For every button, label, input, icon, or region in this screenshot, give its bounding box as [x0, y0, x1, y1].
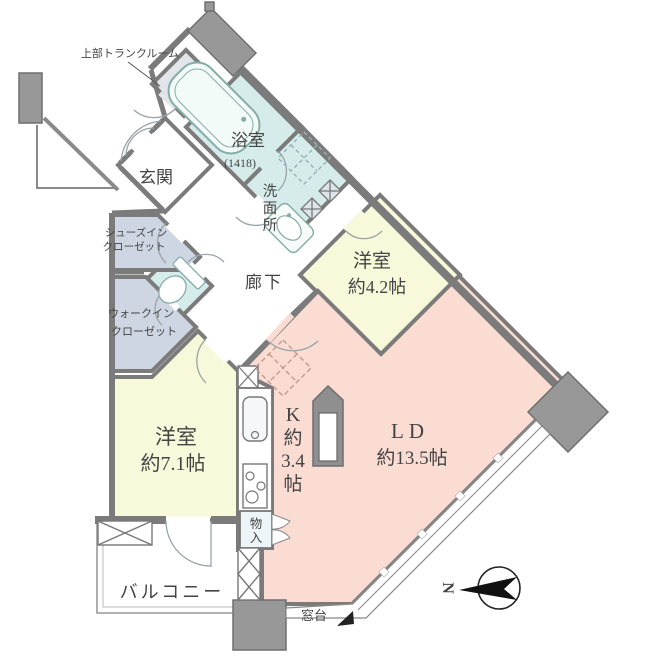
floor-plan-canvas: 上部トランクルーム 玄関 浴室 (1418) 洗 面 所 廊下 シューズイン ク…	[0, 0, 650, 657]
label-west-7-1-name: 洋室	[155, 425, 197, 449]
label-wic-2: クローゼット	[111, 325, 177, 338]
label-storage-1: 物	[250, 517, 263, 531]
label-ld-name: LD	[391, 419, 429, 443]
label-washroom-1: 洗	[263, 183, 278, 200]
balcony-hatch-box	[98, 521, 152, 545]
ld-column-inner	[319, 413, 337, 461]
pillar-top-nub	[205, 2, 214, 11]
label-kitchen-4: 帖	[283, 473, 302, 495]
label-bathroom-size: (1418)	[224, 156, 256, 170]
hatched-column	[238, 548, 260, 600]
label-storage-2: 入	[250, 531, 263, 545]
label-kitchen-3: 3.4	[281, 451, 305, 472]
hatched-column-box	[238, 548, 260, 600]
label-kitchen-2: 約	[283, 427, 302, 449]
label-balcony: バルコニー	[120, 582, 225, 602]
label-ld-size: 約13.5帖	[376, 447, 447, 469]
pillar-left	[19, 73, 42, 123]
compass-north-label: N	[439, 582, 456, 594]
label-washroom-2: 面	[263, 201, 278, 217]
label-entrance: 玄関	[139, 168, 173, 187]
label-west-4-2-size: 約4.2帖	[348, 277, 407, 297]
label-washroom-3: 所	[263, 217, 278, 234]
ld-column	[313, 386, 343, 466]
kitchen-fixtures	[238, 366, 272, 512]
label-kitchen-1: K	[286, 404, 301, 426]
label-west-7-1-size: 約7.1帖	[141, 452, 206, 475]
label-corridor: 廊下	[245, 273, 283, 292]
pillar-bottom	[233, 600, 286, 650]
label-madodai: 窓台	[301, 608, 327, 623]
wall-sic-top	[112, 211, 163, 213]
label-sic-2: クローゼット	[103, 241, 166, 253]
label-trunk-note: 上部トランクルーム	[81, 46, 179, 60]
floor-plan-page: 上部トランクルーム 玄関 浴室 (1418) 洗 面 所 廊下 シューズイン ク…	[0, 0, 650, 657]
kitchen-sink	[243, 397, 267, 441]
kitchen-stove	[243, 464, 267, 508]
label-wic-1: ウォークイン	[108, 307, 174, 320]
label-west-4-2-name: 洋室	[353, 250, 391, 272]
label-bathroom: 浴室	[231, 131, 265, 150]
label-sic-1: シューズイン	[105, 226, 167, 239]
